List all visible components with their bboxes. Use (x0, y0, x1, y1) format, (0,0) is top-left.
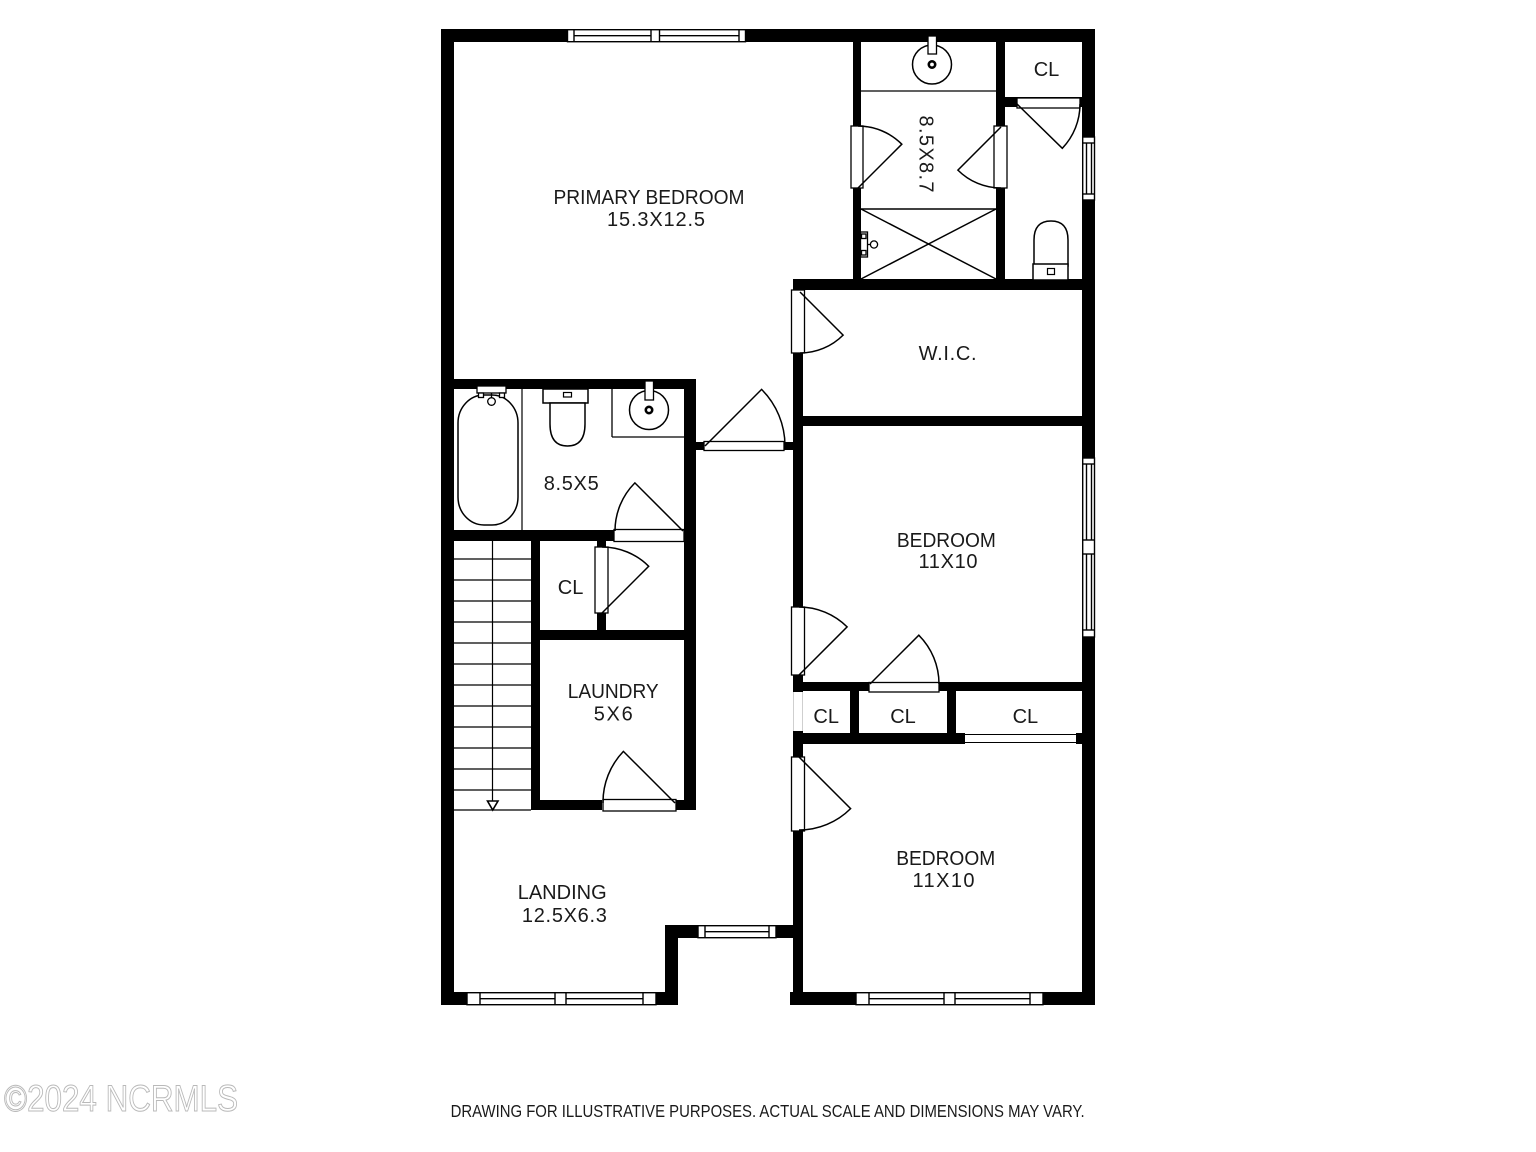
svg-text:11X10: 11X10 (913, 870, 975, 892)
svg-text:12.5X6.3: 12.5X6.3 (522, 905, 607, 927)
svg-text:LAUNDRY: LAUNDRY (568, 681, 659, 703)
svg-text:CL: CL (813, 706, 839, 728)
svg-text:CL: CL (1034, 59, 1060, 81)
svg-text:BEDROOM: BEDROOM (896, 848, 995, 870)
svg-text:PRIMARY BEDROOM: PRIMARY BEDROOM (554, 187, 745, 209)
svg-text:CL: CL (890, 706, 916, 728)
svg-text:DRAWING FOR ILLUSTRATIVE PURPO: DRAWING FOR ILLUSTRATIVE PURPOSES. ACTUA… (451, 1101, 1085, 1121)
svg-text:8.5X5: 8.5X5 (544, 473, 599, 495)
svg-text:LANDING: LANDING (518, 882, 607, 904)
svg-text:15.3X12.5: 15.3X12.5 (607, 209, 705, 231)
svg-text:8.5X8.7: 8.5X8.7 (915, 116, 937, 193)
svg-text:W.I.C.: W.I.C. (919, 343, 977, 365)
svg-text:CL: CL (1013, 706, 1039, 728)
svg-text:5X6: 5X6 (594, 704, 633, 726)
svg-text:CL: CL (558, 577, 584, 599)
svg-text:BEDROOM: BEDROOM (897, 530, 996, 552)
svg-text:©2024 NCRMLS: ©2024 NCRMLS (4, 1078, 238, 1119)
svg-text:11X10: 11X10 (919, 551, 978, 573)
